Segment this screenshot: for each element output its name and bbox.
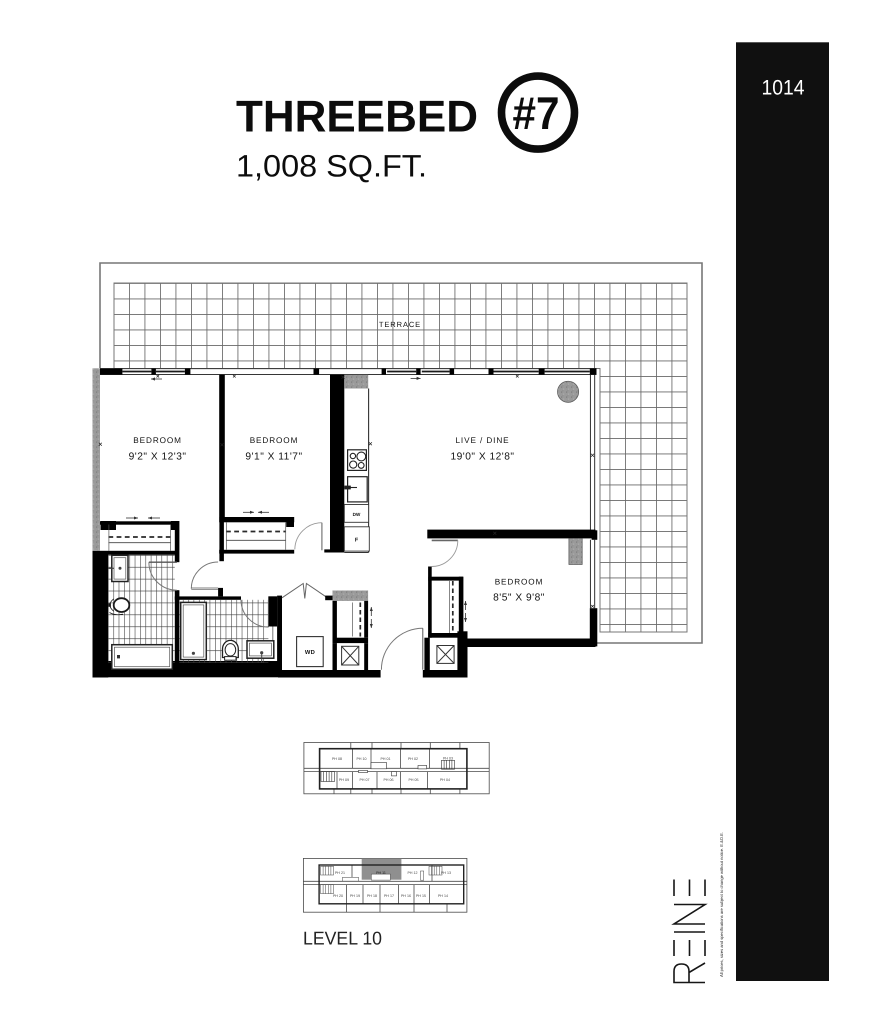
svg-text:PH 21: PH 21: [335, 871, 345, 875]
svg-text:PH 07: PH 07: [360, 778, 370, 782]
svg-text:PH 01: PH 01: [381, 757, 391, 761]
svg-text:PH 17: PH 17: [384, 894, 394, 898]
svg-text:1,008 SQ.FT.: 1,008 SQ.FT.: [236, 149, 427, 184]
svg-text:PH 18: PH 18: [367, 894, 377, 898]
svg-text:1014: 1014: [762, 77, 805, 100]
svg-text:BEDROOM: BEDROOM: [250, 436, 299, 445]
svg-text:THREEBED: THREEBED: [236, 93, 478, 142]
svg-text:PH 11: PH 11: [376, 871, 386, 875]
svg-text:LIVE / DINE: LIVE / DINE: [455, 436, 509, 445]
svg-text:PH 03: PH 03: [443, 757, 453, 761]
svg-text:19'0" X 12'8": 19'0" X 12'8": [450, 452, 514, 463]
svg-text:PH 14: PH 14: [438, 894, 448, 898]
svg-text:9'2" X 12'3": 9'2" X 12'3": [129, 452, 187, 463]
svg-text:9'1" X 11'7": 9'1" X 11'7": [245, 452, 302, 463]
svg-text:8'5" X 9'8": 8'5" X 9'8": [493, 593, 545, 604]
svg-text:DW: DW: [353, 512, 361, 517]
svg-text:PH 10: PH 10: [357, 757, 367, 761]
svg-text:PH 02: PH 02: [408, 757, 418, 761]
svg-text:PH 05: PH 05: [409, 778, 419, 782]
svg-text:#7: #7: [513, 87, 560, 139]
svg-text:PH 06: PH 06: [384, 778, 394, 782]
svg-text:BEDROOM: BEDROOM: [495, 578, 544, 587]
svg-text:All prices, sizes and specific: All prices, sizes and specifications are…: [719, 832, 724, 977]
svg-text:LEVEL 10: LEVEL 10: [303, 928, 382, 949]
svg-text:WD: WD: [305, 650, 315, 656]
svg-text:PH 04: PH 04: [440, 778, 450, 782]
svg-text:TERRACE: TERRACE: [379, 320, 421, 329]
svg-text:PH 12: PH 12: [408, 871, 418, 875]
svg-text:PH 15: PH 15: [416, 894, 426, 898]
svg-text:PH 20: PH 20: [333, 894, 343, 898]
svg-text:PH 16: PH 16: [401, 894, 411, 898]
svg-text:BEDROOM: BEDROOM: [133, 436, 182, 445]
svg-text:PH 08: PH 08: [332, 757, 342, 761]
svg-text:PH 19: PH 19: [350, 894, 360, 898]
svg-text:PH 09: PH 09: [339, 778, 349, 782]
svg-text:PH 13: PH 13: [441, 871, 451, 875]
